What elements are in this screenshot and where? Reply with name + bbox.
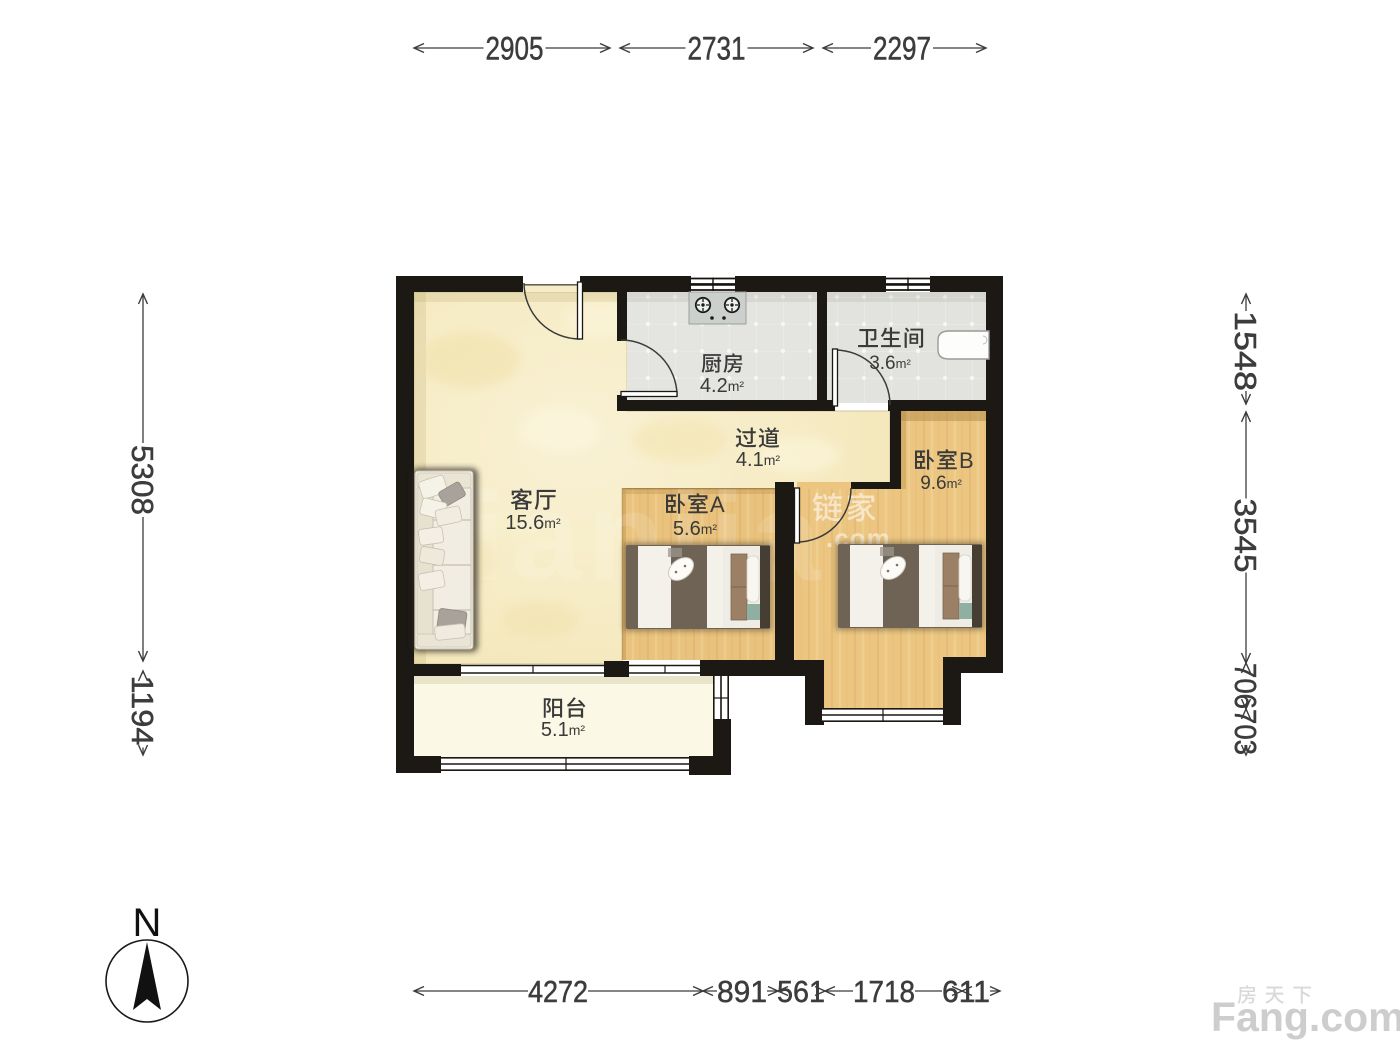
svg-text:9.6m²: 9.6m² xyxy=(920,473,962,494)
svg-text:3545: 3545 xyxy=(1228,499,1263,573)
svg-text:4.2m²: 4.2m² xyxy=(700,375,744,397)
svg-text:2905: 2905 xyxy=(486,31,544,67)
svg-text:5.1m²: 5.1m² xyxy=(541,719,585,741)
svg-text:706: 706 xyxy=(1228,663,1263,709)
svg-text:5308: 5308 xyxy=(125,445,160,515)
svg-text:4272: 4272 xyxy=(528,974,588,1009)
svg-text:15.6m²: 15.6m² xyxy=(505,512,561,534)
svg-text:891: 891 xyxy=(717,974,767,1009)
svg-text:611: 611 xyxy=(942,974,990,1009)
svg-text:3.6m²: 3.6m² xyxy=(869,353,911,374)
svg-text:N: N xyxy=(133,901,162,945)
svg-text:Fang.com: Fang.com xyxy=(1211,994,1400,1040)
svg-text:2297: 2297 xyxy=(873,31,931,67)
svg-text:703: 703 xyxy=(1228,709,1263,755)
svg-text:5.6m²: 5.6m² xyxy=(673,518,717,540)
svg-text:B: B xyxy=(959,448,974,473)
svg-text:A: A xyxy=(710,492,725,517)
svg-text:2731: 2731 xyxy=(688,31,746,67)
svg-text:4.1m²: 4.1m² xyxy=(736,449,780,471)
svg-text:1548: 1548 xyxy=(1228,311,1263,391)
svg-text:1194: 1194 xyxy=(125,676,160,746)
svg-text:561: 561 xyxy=(777,974,825,1009)
svg-text:1718: 1718 xyxy=(853,974,915,1009)
